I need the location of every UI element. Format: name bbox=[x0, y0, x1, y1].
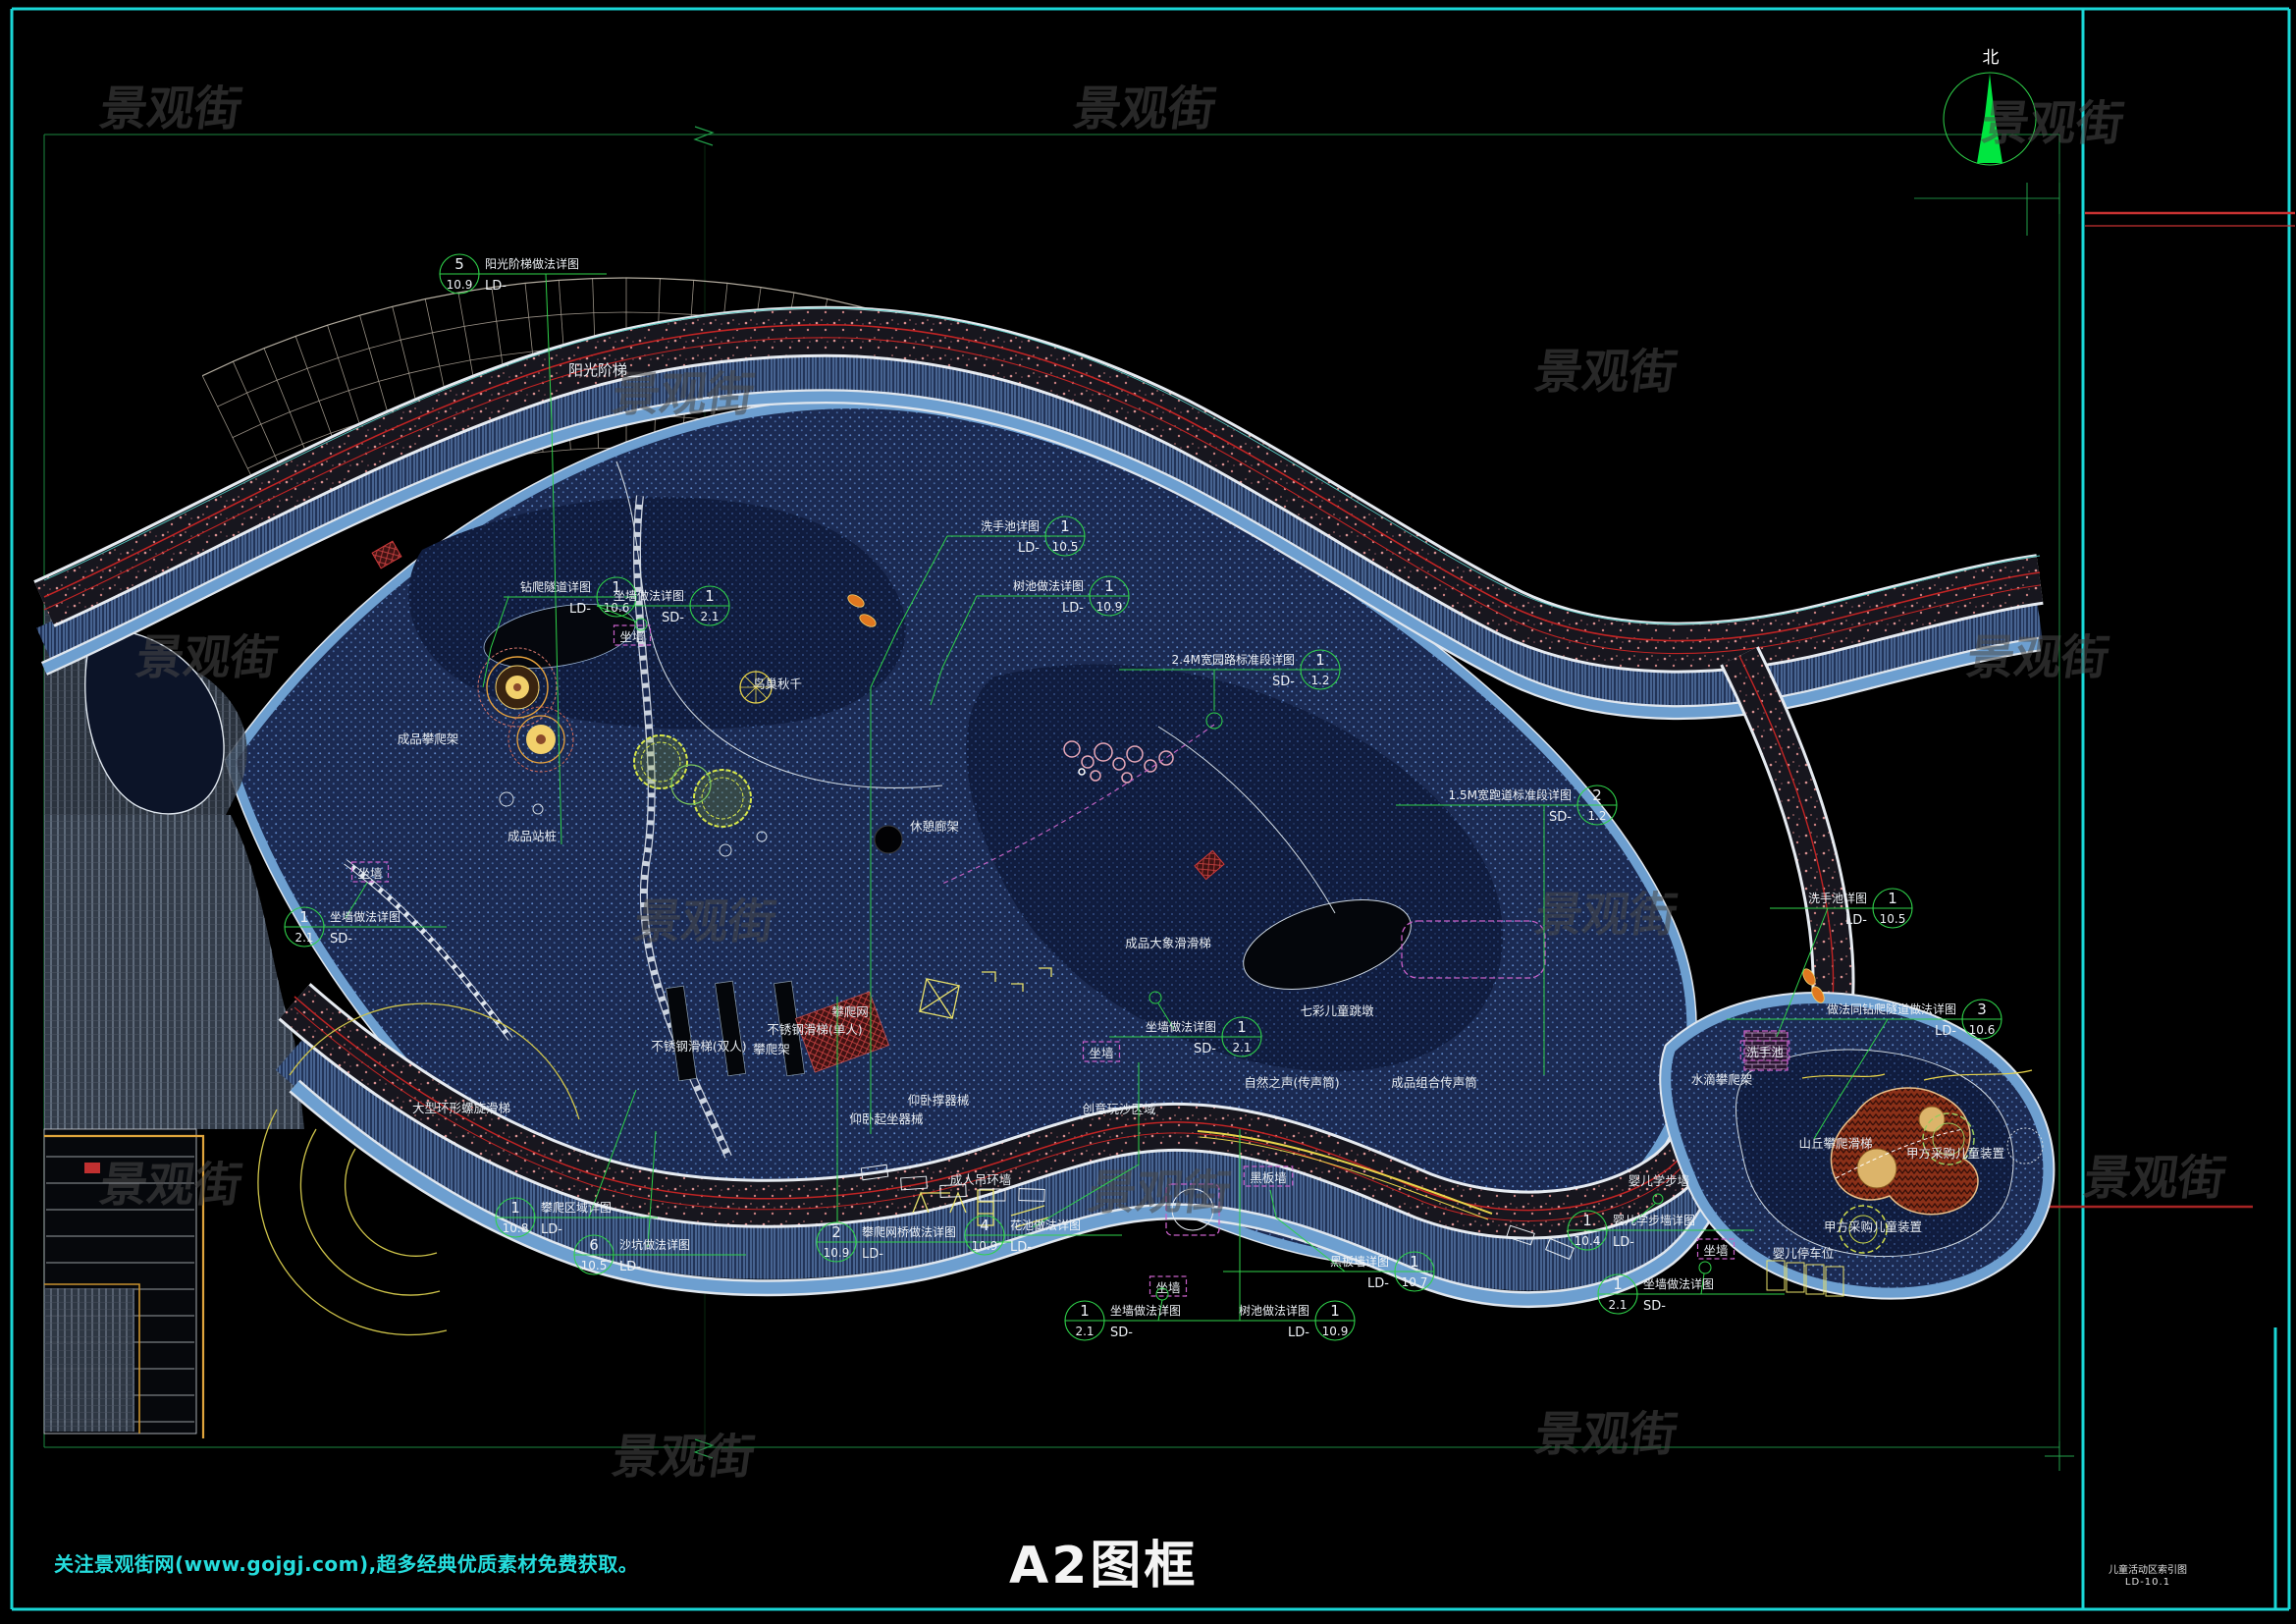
callout-label: 坐墙做法详图 bbox=[614, 588, 684, 603]
callout-sheet: 10.7 bbox=[1402, 1275, 1428, 1289]
callout-sheet: 10.9 bbox=[972, 1239, 998, 1253]
callout-label: 坐墙做法详图 bbox=[1110, 1303, 1181, 1318]
callout-sheet: 1.2 bbox=[1310, 674, 1329, 687]
callout-prefix: LD- bbox=[1062, 601, 1084, 616]
callout-label: 树池做法详图 bbox=[1239, 1303, 1309, 1318]
area-label: 休憩廊架 bbox=[910, 819, 959, 834]
callout-sheet: 10.5 bbox=[581, 1259, 608, 1272]
area-label: 七彩儿童跳墩 bbox=[1300, 1003, 1374, 1018]
area-label: 洗手池 bbox=[1746, 1045, 1784, 1059]
titleblock-drawing-name: 儿童活动区索引图 bbox=[2079, 1561, 2216, 1576]
area-label: 攀爬架 bbox=[753, 1042, 790, 1056]
callout-prefix: SD- bbox=[662, 611, 684, 625]
callout-sheet: 2.1 bbox=[1232, 1041, 1251, 1055]
area-label: 创意玩沙区域 bbox=[1082, 1102, 1155, 1116]
area-label: 不锈钢滑梯(双人) bbox=[651, 1039, 746, 1054]
watermark-text: 景观街 bbox=[2080, 1151, 2229, 1206]
callout-label: 坐墙做法详图 bbox=[1643, 1276, 1714, 1291]
callout-target-circle bbox=[1699, 1262, 1711, 1273]
callout-prefix: LD- bbox=[1288, 1326, 1309, 1340]
watermark-text: 景观街 bbox=[1085, 1165, 1234, 1220]
callout-number: 1 bbox=[1104, 577, 1114, 595]
area-label: 成人吊环墙 bbox=[950, 1172, 1012, 1187]
callout-prefix: LD- bbox=[485, 279, 507, 294]
callout-prefix: LD- bbox=[619, 1260, 641, 1274]
area-label: 仰卧撑器械 bbox=[908, 1093, 970, 1108]
area-label: 鸟巢秋千 bbox=[753, 677, 802, 691]
callout-number: 1 bbox=[1315, 651, 1325, 669]
callout-sheet: 10.8 bbox=[503, 1221, 529, 1235]
callout-label: 沙坑做法详图 bbox=[619, 1237, 690, 1252]
callout-number: 1 bbox=[1330, 1302, 1340, 1320]
watermark-text: 景观街 bbox=[133, 630, 282, 685]
watermark-text: 景观街 bbox=[1963, 630, 2112, 685]
callout-sheet: 10.9 bbox=[824, 1246, 850, 1260]
callout-sheet: 10.4 bbox=[1575, 1234, 1601, 1248]
area-label: 大型环形螺旋滑梯 bbox=[412, 1101, 510, 1115]
callout-number: 1 bbox=[1582, 1212, 1592, 1229]
area-label: 黑板墙 bbox=[1250, 1170, 1287, 1185]
callout-label: 攀爬网桥做法详图 bbox=[862, 1224, 956, 1239]
area-label: 水滴攀爬架 bbox=[1691, 1072, 1753, 1087]
callout-sheet: 2.1 bbox=[1075, 1325, 1094, 1338]
area-label: 成品站桩 bbox=[507, 829, 557, 843]
area-label: 成品组合传声筒 bbox=[1391, 1075, 1477, 1090]
area-label: 坐墙 bbox=[619, 629, 644, 644]
callout-number: 1 bbox=[1613, 1275, 1623, 1293]
road-crossing-1 bbox=[372, 541, 401, 568]
callout-prefix: SD- bbox=[1643, 1299, 1666, 1314]
area-label: 成品攀爬架 bbox=[398, 731, 459, 746]
callout-prefix: LD- bbox=[1613, 1235, 1634, 1250]
watermark-text: 景观街 bbox=[1070, 81, 1219, 136]
callout-prefix: LD- bbox=[1010, 1240, 1032, 1255]
cad-viewport: { "frame": { "promo_text": "关注景观街网(www.g… bbox=[0, 0, 2296, 1624]
plaza-small bbox=[44, 1288, 134, 1432]
watermark-text: 景观街 bbox=[96, 1158, 245, 1213]
callout-prefix: LD- bbox=[1845, 913, 1867, 928]
callout-sheet: 2.1 bbox=[1608, 1298, 1627, 1312]
callout-label: 树池做法详图 bbox=[1013, 578, 1084, 593]
callout-label: 婴儿学步墙详图 bbox=[1613, 1213, 1695, 1227]
area-label: 坐墙 bbox=[1703, 1243, 1728, 1258]
callout-sheet: 2.1 bbox=[700, 610, 719, 623]
callout-sheet: 1.2 bbox=[1587, 809, 1606, 823]
callout-prefix: SD- bbox=[1110, 1326, 1133, 1340]
callout-label: 洗手池详图 bbox=[981, 518, 1040, 533]
area-label: 甲方采购儿童装置 bbox=[1824, 1219, 1922, 1234]
callout-sheet: 10.5 bbox=[1052, 540, 1079, 554]
callout-prefix: LD- bbox=[1935, 1024, 1956, 1039]
callout-number: 3 bbox=[1977, 1001, 1987, 1018]
callout-label: 坐墙做法详图 bbox=[330, 909, 400, 924]
callout-label: 花池做法详图 bbox=[1010, 1218, 1081, 1232]
callout-label: 做法同钻爬隧道做法详图 bbox=[1827, 1001, 1956, 1016]
callout-sheet: 10.9 bbox=[1322, 1325, 1349, 1338]
callout-number: 1 bbox=[299, 908, 309, 926]
callout-number: 1 bbox=[705, 587, 715, 605]
promo-banner: 关注景观街网(www.gojgj.com),超多经典优质素材免费获取。 bbox=[54, 1548, 638, 1577]
area-label: 坐墙 bbox=[357, 866, 382, 881]
area-label: 山丘攀爬滑梯 bbox=[1798, 1136, 1872, 1151]
tree-canopy-dark bbox=[875, 826, 902, 853]
callout-label: 1.5M宽跑道标准段详图 bbox=[1449, 787, 1572, 802]
callout-number: 1 bbox=[1410, 1253, 1419, 1271]
sheet-title: A2图框 bbox=[1009, 1524, 1198, 1597]
callout-sheet: 10.6 bbox=[1969, 1023, 1996, 1037]
area-label: 坐墙 bbox=[1089, 1046, 1113, 1060]
titleblock-drawing-number: LD-10.1 bbox=[2079, 1577, 2216, 1588]
watermark-text: 景观街 bbox=[609, 367, 758, 422]
area-label: 成品大象滑滑梯 bbox=[1125, 936, 1211, 950]
callout-prefix: SD- bbox=[1194, 1042, 1216, 1056]
area-label: 不锈钢滑梯(单人) bbox=[767, 1022, 862, 1037]
callout-number: 1 bbox=[510, 1199, 520, 1217]
callout-prefix: LD- bbox=[862, 1247, 883, 1262]
callout-number: 1 bbox=[1237, 1018, 1247, 1036]
watermark-text: 景观街 bbox=[1531, 345, 1681, 400]
callout-sheet: 10.9 bbox=[447, 278, 473, 292]
area-label: 阳光阶梯 bbox=[568, 361, 627, 379]
callout-prefix: LD- bbox=[1018, 541, 1040, 556]
callout-sheet: 2.1 bbox=[294, 931, 313, 945]
callout-sheet: 10.6 bbox=[604, 601, 630, 615]
callout-prefix: LD- bbox=[569, 602, 591, 617]
break-mark-top bbox=[695, 127, 713, 145]
watermark-text: 景观街 bbox=[609, 1430, 758, 1485]
watermark-text: 景观街 bbox=[630, 894, 779, 949]
watermark-text: 景观街 bbox=[1531, 1407, 1681, 1462]
callout-number: 1 bbox=[1888, 890, 1897, 907]
site-plan-canvas: 北 景观街景观街景观街景观街景观街景观街景观街景观街景观街景观街景观街景观街景观… bbox=[0, 0, 2296, 1624]
red-marker bbox=[84, 1163, 100, 1173]
callout-number: 6 bbox=[589, 1236, 599, 1254]
callout-label: 洗手池详图 bbox=[1808, 891, 1867, 905]
callout-sheet: 10.5 bbox=[1880, 912, 1906, 926]
callout-sheet: 10.9 bbox=[1096, 600, 1123, 614]
callout-number: 1 bbox=[1080, 1302, 1090, 1320]
callout-label: 坐墙做法详图 bbox=[1146, 1019, 1216, 1034]
callout-prefix: LD- bbox=[1367, 1276, 1389, 1291]
callout-number: 5 bbox=[454, 255, 464, 273]
watermark-text: 景观街 bbox=[96, 81, 245, 136]
area-label: 婴儿停车位 bbox=[1773, 1246, 1835, 1261]
callout-label: 2.4M宽园路标准段详图 bbox=[1172, 652, 1295, 667]
compass-north-label: 北 bbox=[1983, 48, 2000, 68]
callout-label: 攀爬区域详图 bbox=[541, 1200, 612, 1215]
callout-number: 1 bbox=[1060, 517, 1070, 535]
watermark-text: 景观街 bbox=[1978, 96, 2127, 151]
callout-label: 钻爬隧道详图 bbox=[520, 579, 591, 594]
callout-prefix: SD- bbox=[1272, 675, 1295, 689]
callout-number: 4 bbox=[980, 1217, 989, 1234]
callout-number: 2 bbox=[831, 1223, 841, 1241]
area-label: 仰卧起坐器械 bbox=[849, 1111, 924, 1126]
callout-label: 阳光阶梯做法详图 bbox=[485, 256, 579, 271]
watermark-text: 景观街 bbox=[1531, 888, 1681, 943]
area-label: 甲方采购儿童装置 bbox=[1906, 1146, 2004, 1161]
callout-number: 2 bbox=[1592, 786, 1602, 804]
area-label: 自然之声(传声筒) bbox=[1244, 1075, 1339, 1090]
callout-prefix: LD- bbox=[541, 1222, 562, 1237]
callout-label: 黑板墙详图 bbox=[1330, 1254, 1389, 1269]
callout-prefix: SD- bbox=[330, 932, 352, 947]
callout-prefix: SD- bbox=[1549, 810, 1572, 825]
frame-corner-ticks bbox=[2027, 183, 2074, 1471]
area-label: 婴儿学步墙 bbox=[1629, 1173, 1690, 1188]
